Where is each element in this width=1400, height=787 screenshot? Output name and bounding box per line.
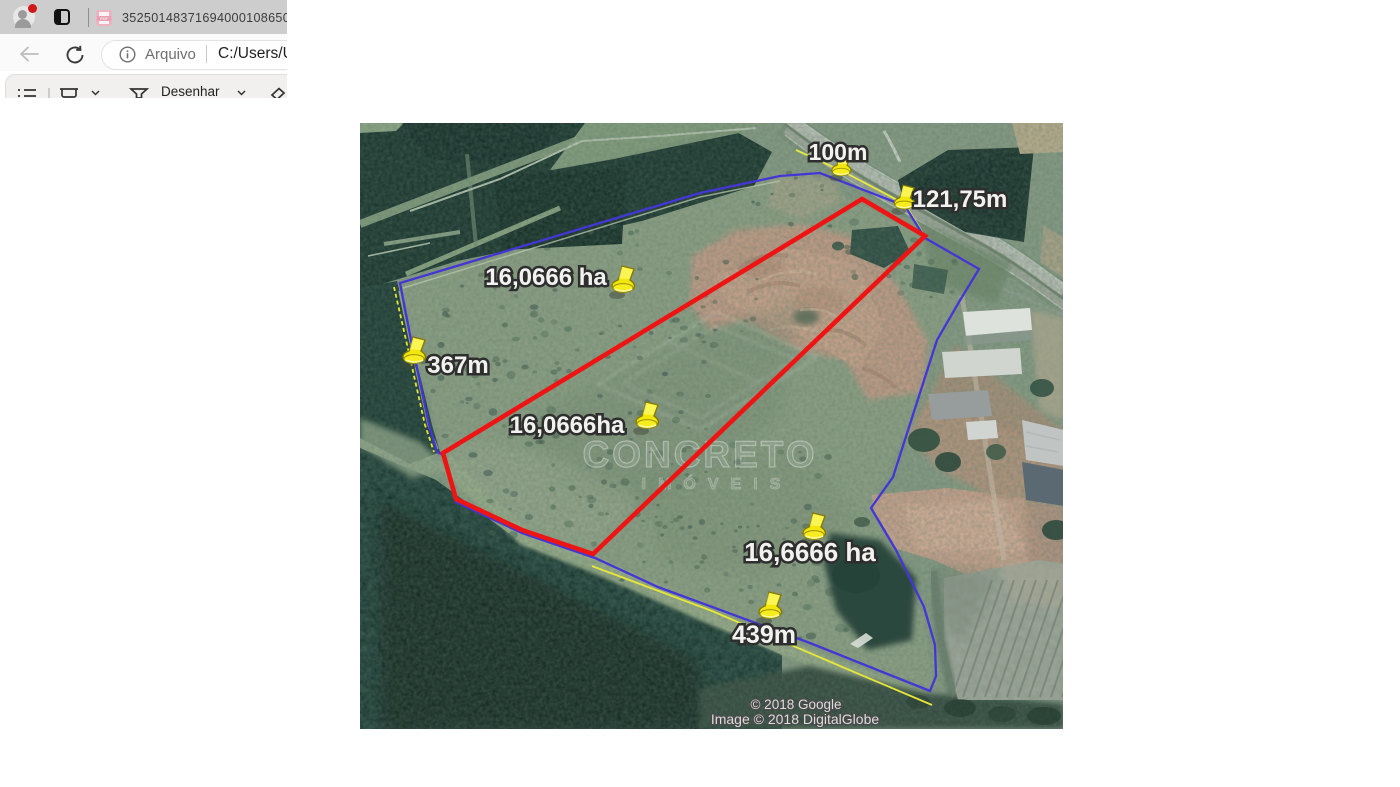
svg-text:100m: 100m [809,139,868,165]
svg-text:Image © 2018 DigitalGlobe: Image © 2018 DigitalGlobe [711,711,880,727]
svg-text:367m: 367m [427,352,488,379]
svg-text:16,0666ha: 16,0666ha [510,412,625,439]
svg-text:16,6666 ha: 16,6666 ha [744,537,876,567]
svg-text:16,0666 ha: 16,0666 ha [485,264,607,291]
svg-text:© 2018 Google: © 2018 Google [750,697,841,712]
svg-text:121,75m: 121,75m [913,186,1008,213]
svg-text:439m: 439m [732,621,796,649]
